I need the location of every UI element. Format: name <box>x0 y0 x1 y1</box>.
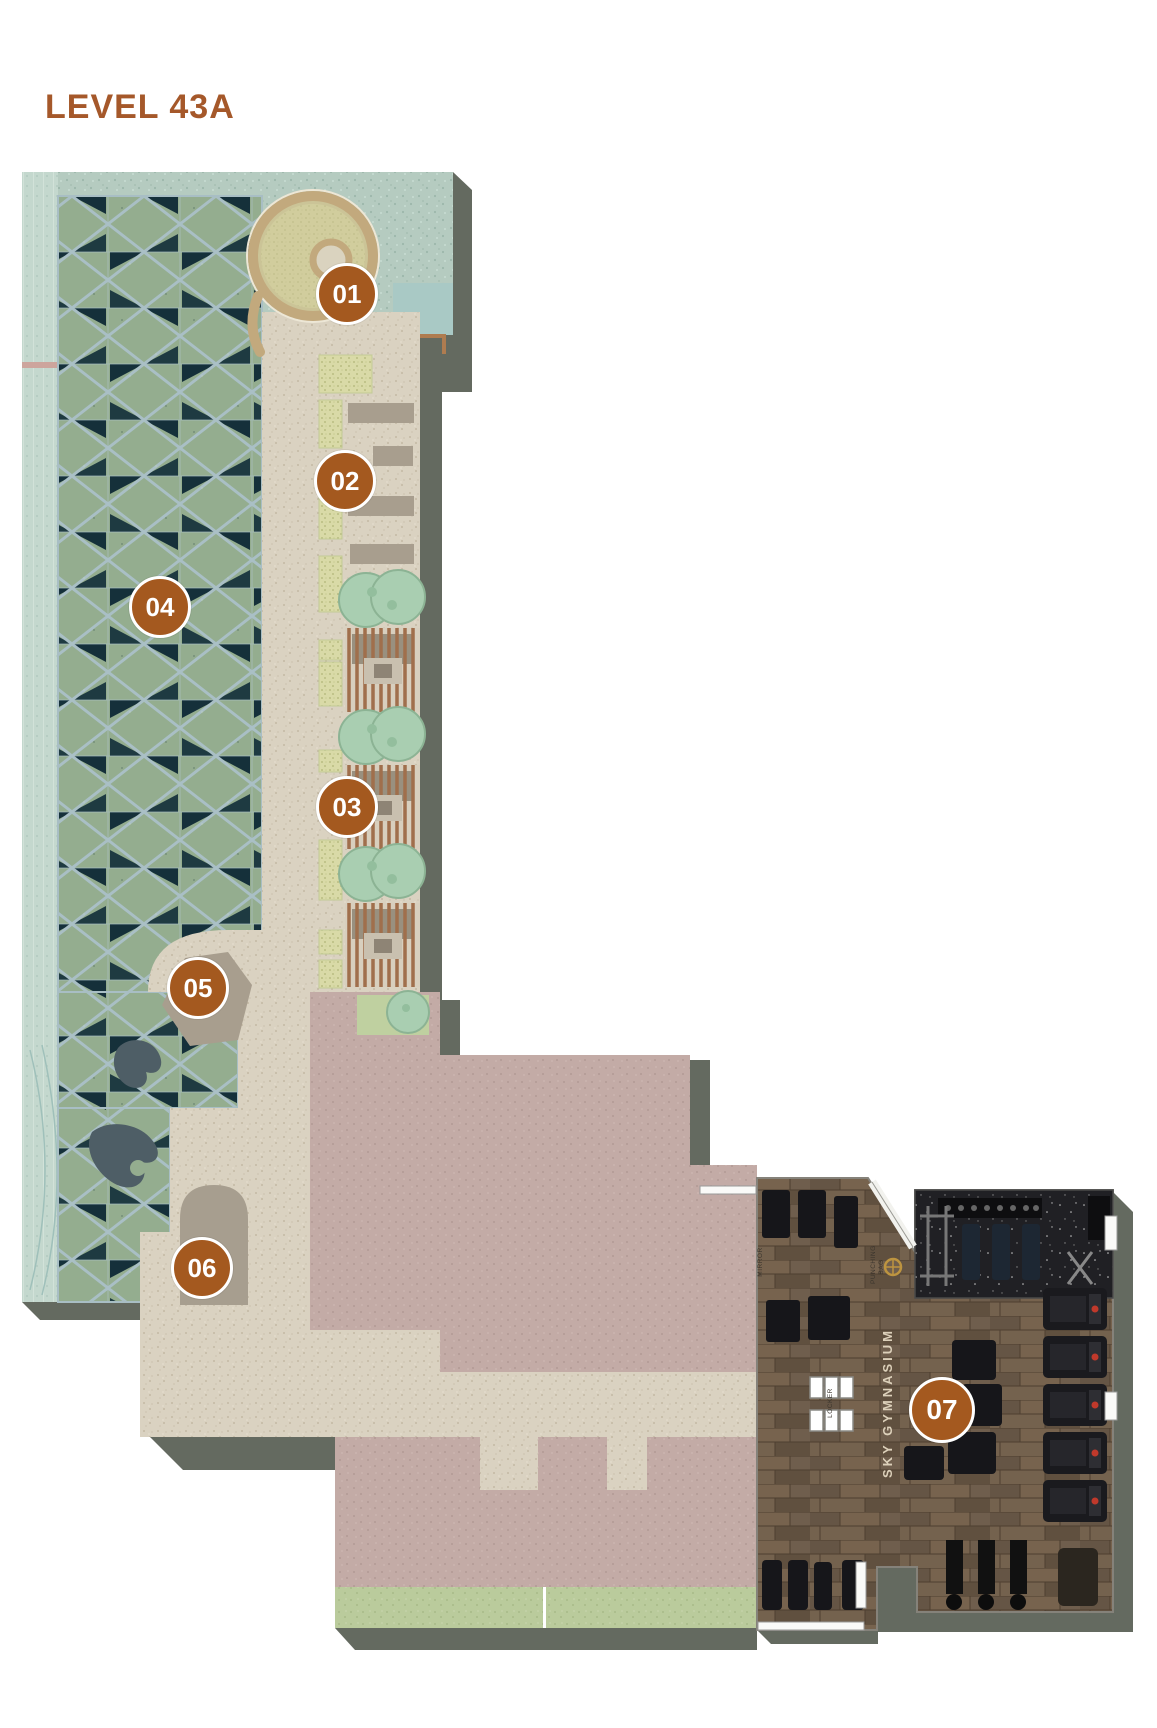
mirror-label: MIRROR <box>757 1232 767 1292</box>
building-core <box>310 992 757 1587</box>
marker-07[interactable]: 07 <box>909 1377 975 1443</box>
punching-bag-icon <box>885 1259 901 1275</box>
treadmills <box>1043 1288 1107 1522</box>
page-title: LEVEL 43A <box>45 88 235 127</box>
floor-plan-page: LEVEL 43A 01 02 03 04 05 06 07 SKY GYMNA… <box>0 0 1157 1728</box>
punching-bag-label: PUNCHING BAG <box>870 1250 884 1284</box>
locker-label: LOCKER <box>827 1383 835 1423</box>
floor-plan-graphic <box>0 0 1157 1728</box>
marker-01[interactable]: 01 <box>316 263 378 325</box>
marker-06[interactable]: 06 <box>171 1237 233 1299</box>
marker-05[interactable]: 05 <box>167 957 229 1019</box>
gym-name-label: SKY GYMNASIUM <box>880 1303 896 1503</box>
marker-02[interactable]: 02 <box>314 450 376 512</box>
corridor <box>440 1372 810 1437</box>
edge-marker <box>22 362 62 368</box>
lawn-strips <box>335 1587 757 1628</box>
marker-03[interactable]: 03 <box>316 776 378 838</box>
marker-04[interactable]: 04 <box>129 576 191 638</box>
